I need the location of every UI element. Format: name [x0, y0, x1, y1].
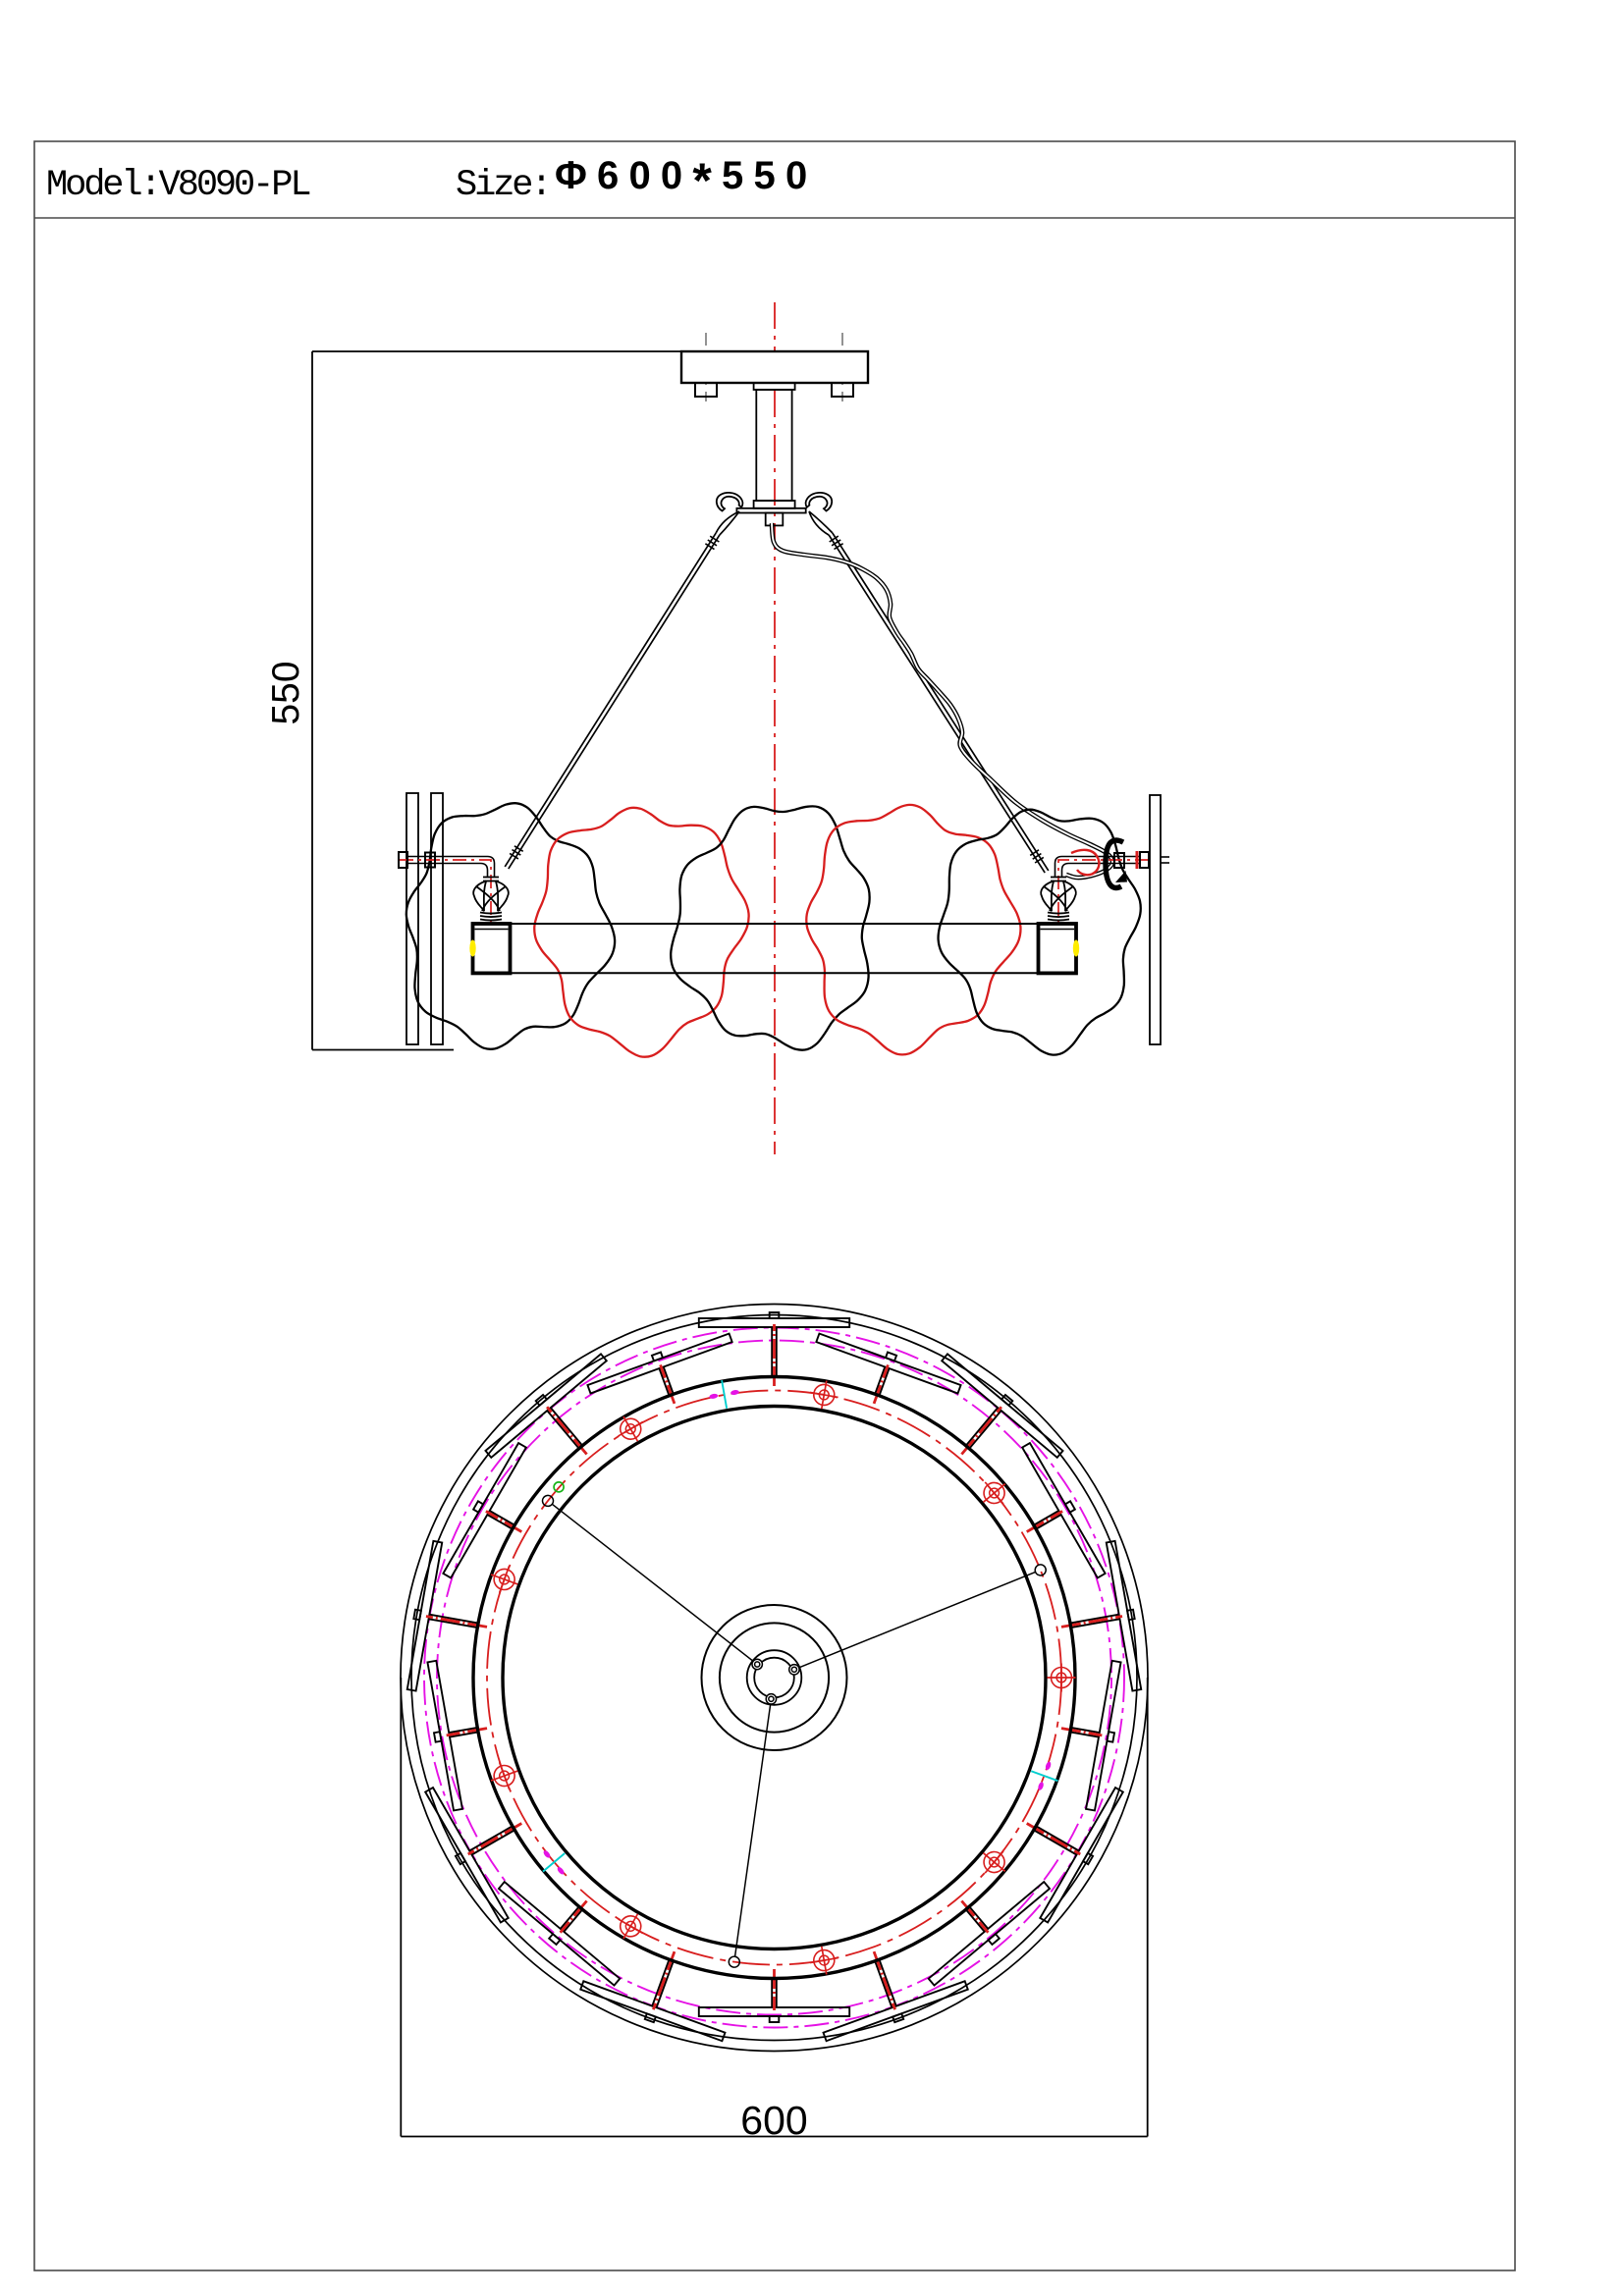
svg-text:Size:: Size: — [456, 165, 550, 206]
svg-text:Model:V8090-PL: Model:V8090-PL — [46, 165, 309, 206]
svg-text:550: 550 — [265, 661, 307, 724]
svg-text:600: 600 — [740, 2098, 807, 2143]
